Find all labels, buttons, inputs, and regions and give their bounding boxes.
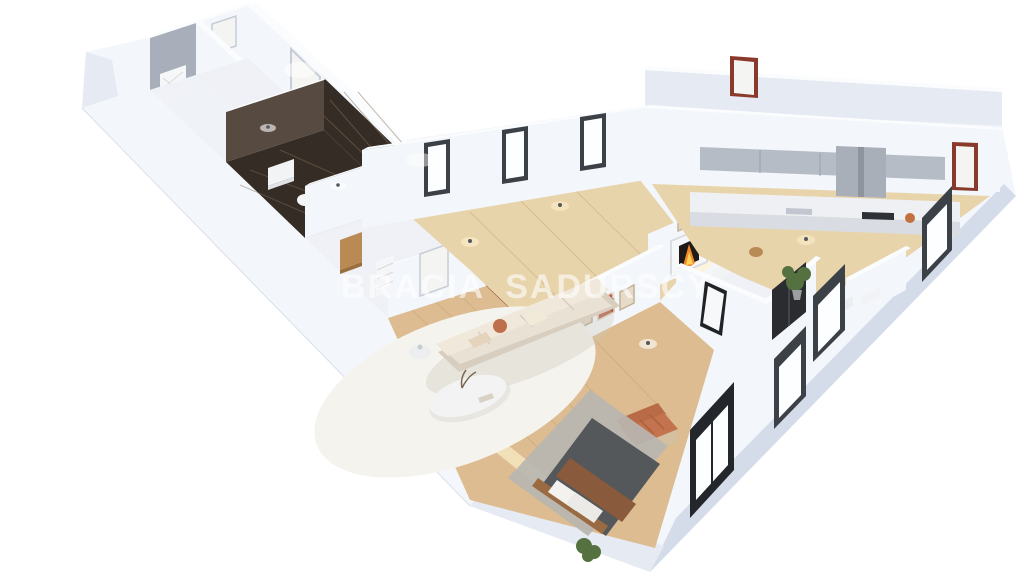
white-door-corridor [420,244,448,296]
cooktop [862,212,894,220]
spot [330,182,346,190]
floorplan-render: BRACIA SADURSCY [0,0,1024,576]
toilet [297,194,313,206]
spot [461,237,479,247]
red-framed-door-back [730,56,758,98]
north-window-3 [580,113,606,171]
utility-wire-shelf [376,255,394,297]
spot [551,201,569,211]
red-framed-door-kitchen [952,142,978,191]
spot [639,339,657,349]
floorplan-scene [0,0,1024,576]
orange-bowl [905,213,915,223]
north-window-2 [502,126,528,184]
rust-ball-cushion [493,319,507,333]
spot [260,124,276,132]
stool [749,247,763,257]
north-window-1 [424,139,450,197]
spot [797,235,815,245]
sink [786,208,812,215]
